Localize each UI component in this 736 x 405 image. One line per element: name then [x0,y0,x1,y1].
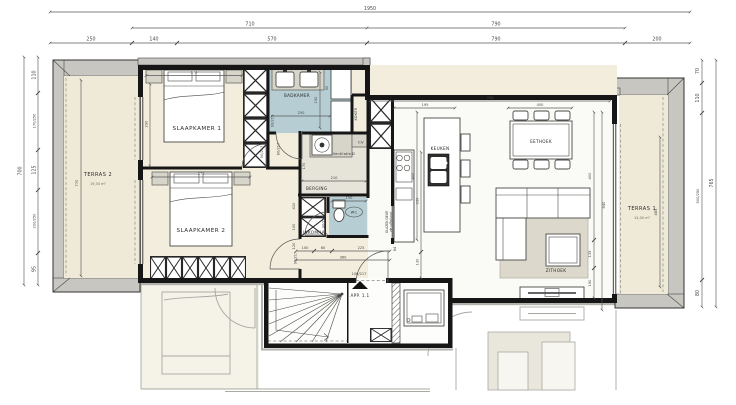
dim: 100 [292,223,296,231]
door-size: 106/217 [352,272,367,276]
room-label-badkamer: BADKAMER [284,93,310,98]
dim: 125 [32,165,38,174]
dim: 360 [340,256,348,260]
dim: 290 [145,120,149,128]
label-ventilatie: Ventilatie D [333,152,355,156]
room-label-berging: BERGING [306,186,327,191]
room-label-terras-1: TERRAS 1 [627,206,656,212]
bathroom-sinks [272,68,324,90]
dim: 500/250 [696,188,700,204]
shower [331,68,351,99]
floor-plan-drawing: 1950 710 790 250 140 570 790 200 700 110… [0,0,736,405]
dim: 150 [588,279,592,287]
dim: 140 [149,37,158,43]
dim: 210 [331,176,339,180]
dim: 110 [695,93,701,102]
door-size: 90/217 [294,252,298,265]
dim: 410 [292,202,296,210]
terrace-1 [615,78,684,308]
label-apartment-number: APP. 1.1 [351,293,370,298]
sitting-area [496,188,590,278]
dim: 200 [652,37,661,43]
dim: 705 [487,96,494,100]
dim: 100 [302,246,310,250]
dim: 190 [314,96,318,104]
dim: 330 [416,197,420,205]
dim: 130 [416,258,420,266]
door-size: 90/217 [322,216,326,229]
dim: 770 [75,179,79,187]
dim: 225 [358,246,365,250]
room-label-terras-2: TERRAS 2 [83,172,112,178]
door-size: 80/217 [277,143,281,156]
kitchen-counter [394,150,414,242]
tv-console [520,287,584,299]
dim: 790 [491,22,500,28]
dim: 120 [292,242,296,250]
dim: 170 [302,162,306,170]
area-terras-2: 19,34 m² [90,182,107,186]
sofa [496,188,590,218]
area-terras-1: 14,00 m² [634,216,651,220]
dim: 80 [695,290,701,296]
room-label-koker: KOKER [354,107,358,120]
dim-right-total: 765 [709,178,715,187]
shower [331,101,351,132]
door-size: 90/217 [260,146,264,159]
dim-top-total: 1950 [364,6,376,12]
dim-left-total: 700 [18,166,24,175]
room-label-zithoek: ZITHOEK [546,268,567,273]
dim: 250 [298,111,306,115]
room-label-inkomhal: INKOMHAL [303,230,328,235]
note-glass-door: zie p/Rolland [389,212,393,232]
dim: 95 [32,266,38,272]
dim: 640 [602,201,606,209]
dim: 400 [588,172,592,180]
dim: 60 [321,246,326,250]
dim: 370 [198,172,206,176]
dim: 200/250 [33,213,37,229]
dim: 170/250 [33,113,37,129]
room-label-slaapkamer-2: SLAAPKAMER 2 [177,228,226,234]
room-label-keuken: KEUKEN [431,146,450,151]
dim: 400 [411,172,415,180]
dim: 710 [245,22,254,28]
dim: 84 [393,246,397,251]
dim: 370 [191,71,199,75]
dim: 570 [267,37,276,43]
dim: 790 [491,37,500,43]
dim: 250 [86,37,95,43]
dim: 90 [325,85,329,90]
room-label-slaapkamer-1: SLAAPKAMER 1 [173,126,222,132]
coffee-table [546,234,580,266]
dim: 450 [537,103,545,107]
dim: 150 [346,196,354,200]
dim: 135 [588,251,592,258]
label-cv: CV [358,140,364,145]
floor-plan-canvas: 1950 710 790 250 140 570 790 200 700 110… [0,0,736,405]
dim: 195 [422,103,429,107]
door-size: 90/217 [271,115,275,128]
room-label-eethoek: EETHOEK [530,139,552,144]
dim: 70 [695,68,701,74]
room-label-wc: WC [351,211,358,215]
dim: 110 [32,70,38,79]
